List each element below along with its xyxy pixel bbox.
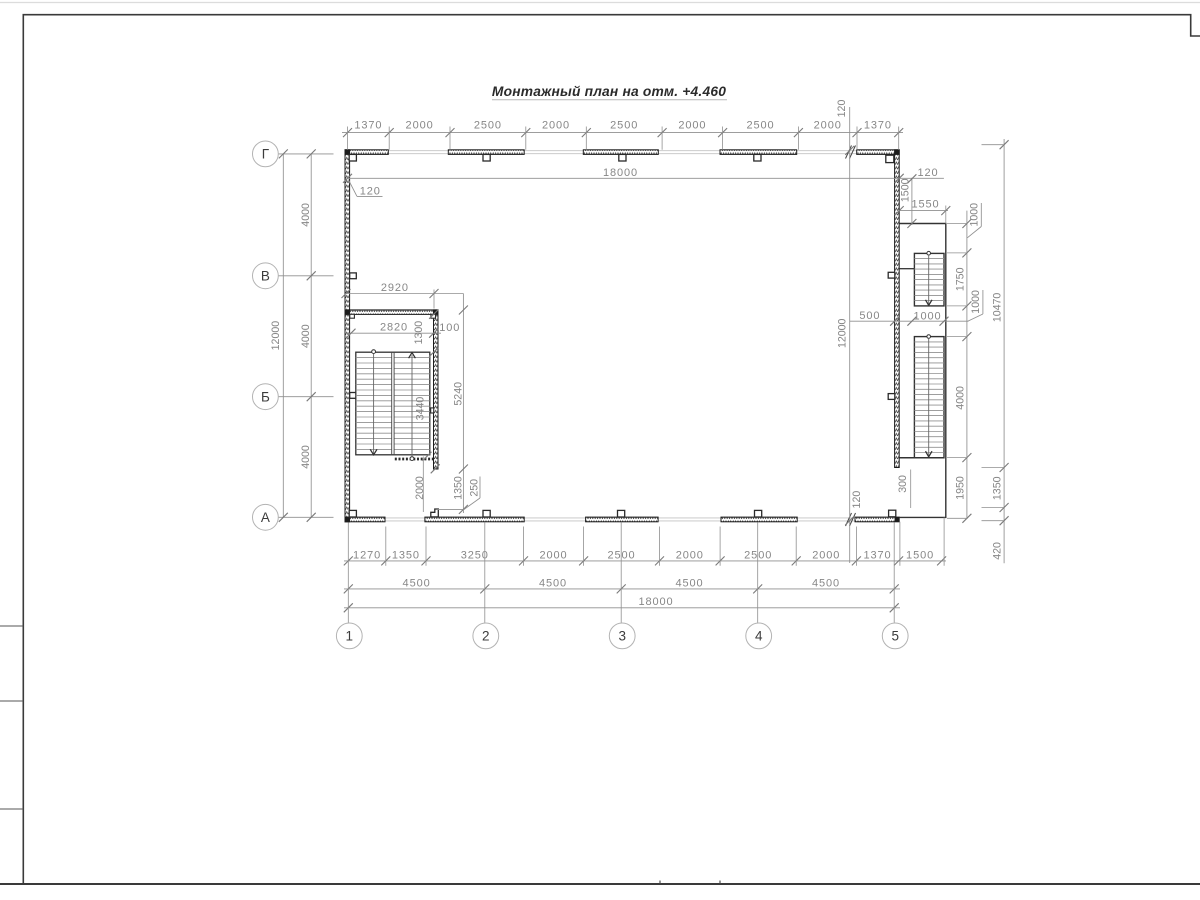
svg-text:100: 100 — [439, 322, 460, 334]
svg-text:10470: 10470 — [991, 293, 1003, 323]
svg-text:300: 300 — [897, 475, 909, 493]
svg-text:5: 5 — [891, 629, 899, 644]
svg-text:3: 3 — [618, 629, 626, 644]
svg-text:1950: 1950 — [954, 476, 966, 500]
svg-text:5240: 5240 — [453, 382, 465, 406]
svg-text:4000: 4000 — [300, 324, 312, 348]
svg-text:2000: 2000 — [676, 549, 704, 561]
svg-text:4: 4 — [755, 629, 763, 644]
svg-text:2820: 2820 — [380, 322, 408, 334]
svg-text:2500: 2500 — [744, 549, 772, 561]
svg-text:Г: Г — [262, 147, 270, 162]
svg-text:1500: 1500 — [906, 549, 934, 561]
svg-text:18000: 18000 — [603, 167, 638, 179]
svg-text:1000: 1000 — [913, 310, 941, 322]
svg-text:А: А — [261, 510, 270, 525]
svg-text:1350: 1350 — [991, 477, 1003, 501]
svg-text:2000: 2000 — [678, 120, 706, 132]
svg-text:1270: 1270 — [353, 549, 381, 561]
svg-text:120: 120 — [360, 186, 381, 198]
svg-text:4000: 4000 — [954, 386, 966, 410]
svg-text:В: В — [261, 269, 270, 284]
svg-text:1550: 1550 — [911, 199, 939, 211]
svg-text:2000: 2000 — [406, 120, 434, 132]
svg-text:3440: 3440 — [414, 397, 426, 421]
svg-text:1750: 1750 — [954, 268, 966, 292]
svg-text:1500: 1500 — [899, 179, 911, 203]
svg-text:12000: 12000 — [836, 319, 848, 349]
svg-text:4500: 4500 — [812, 577, 840, 589]
svg-text:Монтажный план на отм. +4.460: Монтажный план на отм. +4.460 — [492, 84, 726, 99]
svg-text:2000: 2000 — [812, 549, 840, 561]
svg-text:1370: 1370 — [354, 120, 382, 132]
svg-text:1350: 1350 — [392, 549, 420, 561]
svg-text:4000: 4000 — [300, 445, 312, 469]
svg-text:500: 500 — [859, 310, 880, 322]
svg-text:1370: 1370 — [864, 120, 892, 132]
svg-text:1300: 1300 — [413, 321, 425, 345]
svg-text:1000: 1000 — [970, 290, 982, 314]
svg-text:1000: 1000 — [969, 203, 981, 227]
svg-text:120: 120 — [917, 167, 938, 179]
svg-text:1: 1 — [346, 629, 354, 644]
svg-text:Б: Б — [261, 390, 270, 405]
svg-text:2920: 2920 — [381, 282, 409, 294]
svg-text:1370: 1370 — [863, 549, 891, 561]
svg-text:18000: 18000 — [638, 596, 673, 608]
svg-text:120: 120 — [836, 100, 848, 118]
svg-text:4500: 4500 — [403, 577, 431, 589]
svg-text:420: 420 — [991, 542, 1003, 560]
svg-text:4500: 4500 — [675, 577, 703, 589]
svg-text:250: 250 — [469, 479, 481, 497]
svg-text:2000: 2000 — [414, 476, 426, 500]
svg-text:2000: 2000 — [542, 120, 570, 132]
svg-text:4500: 4500 — [539, 577, 567, 589]
svg-text:2000: 2000 — [814, 120, 842, 132]
svg-text:4000: 4000 — [300, 203, 312, 227]
svg-text:2: 2 — [482, 629, 490, 644]
svg-text:12000: 12000 — [270, 321, 282, 351]
svg-text:1350: 1350 — [453, 476, 465, 500]
svg-text:2500: 2500 — [610, 120, 638, 132]
svg-text:2500: 2500 — [746, 120, 774, 132]
svg-text:2500: 2500 — [474, 120, 502, 132]
svg-text:2000: 2000 — [539, 549, 567, 561]
svg-text:120: 120 — [851, 491, 863, 509]
